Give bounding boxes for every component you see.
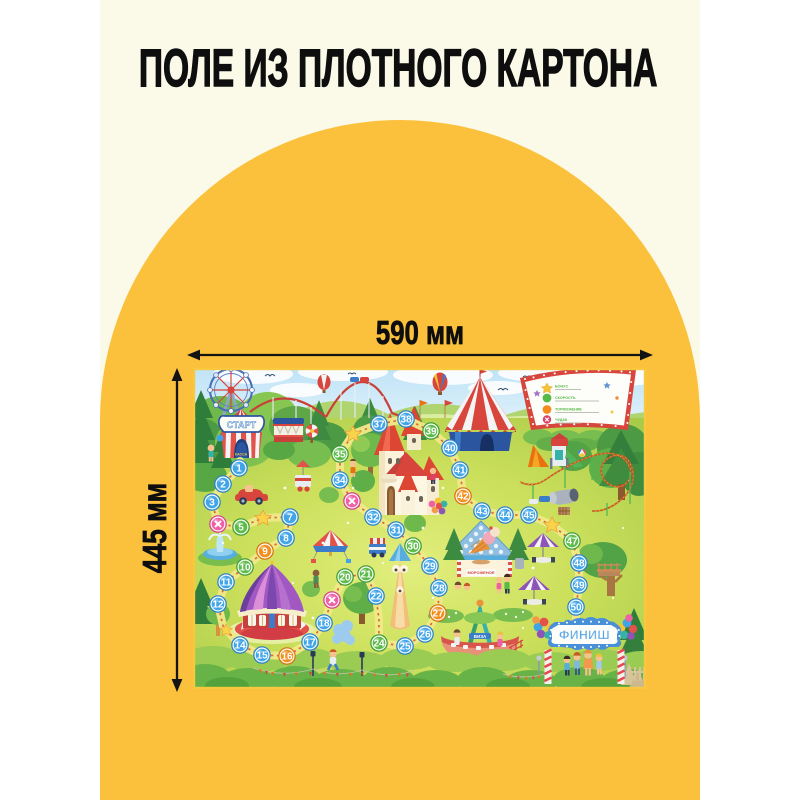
svg-text:7: 7 — [287, 513, 293, 524]
svg-text:32: 32 — [367, 513, 379, 524]
svg-text:10: 10 — [239, 563, 251, 574]
svg-text:47: 47 — [566, 537, 578, 548]
svg-text:15: 15 — [256, 651, 268, 662]
svg-text:БОНУС: БОНУС — [555, 385, 568, 389]
svg-text:СТАРТ: СТАРТ — [227, 420, 257, 430]
svg-text:44: 44 — [499, 511, 511, 522]
svg-text:38: 38 — [400, 415, 412, 426]
svg-text:9: 9 — [262, 547, 268, 558]
svg-text:СКОРОСТЬ: СКОРОСТЬ — [555, 396, 576, 400]
svg-text:42: 42 — [457, 492, 469, 503]
svg-text:8: 8 — [283, 534, 289, 545]
svg-text:ВИЗА: ВИЗА — [474, 634, 487, 639]
svg-text:25: 25 — [399, 642, 411, 653]
svg-text:31: 31 — [390, 526, 402, 537]
svg-text:МОРОЖЕНОЕ: МОРОЖЕНОЕ — [467, 570, 494, 575]
svg-text:3: 3 — [209, 498, 215, 509]
svg-text:45: 45 — [523, 511, 535, 522]
svg-text:22: 22 — [370, 592, 382, 603]
svg-text:18: 18 — [318, 619, 330, 630]
svg-text:ТОРМОЖЕНИЕ: ТОРМОЖЕНИЕ — [555, 408, 582, 412]
svg-text:КАССА: КАССА — [235, 453, 248, 457]
svg-text:ЧУДАК: ЧУДАК — [555, 418, 568, 422]
svg-text:34: 34 — [334, 476, 346, 487]
svg-text:43: 43 — [476, 507, 488, 518]
svg-text:11: 11 — [221, 578, 232, 589]
svg-text:30: 30 — [407, 542, 419, 553]
svg-text:1: 1 — [236, 464, 242, 475]
svg-text:27: 27 — [432, 609, 444, 620]
svg-text:29: 29 — [424, 562, 436, 573]
svg-text:14: 14 — [234, 641, 246, 652]
svg-text:35: 35 — [334, 450, 346, 461]
svg-text:12: 12 — [212, 600, 224, 611]
svg-text:49: 49 — [573, 581, 585, 592]
svg-text:41: 41 — [454, 466, 466, 477]
svg-text:48: 48 — [573, 559, 585, 570]
svg-text:28: 28 — [433, 584, 445, 595]
svg-text:ФИНИШ: ФИНИШ — [559, 628, 610, 642]
svg-text:17: 17 — [304, 638, 316, 649]
svg-text:40: 40 — [444, 444, 456, 455]
svg-text:37: 37 — [373, 420, 385, 431]
svg-text:39: 39 — [425, 427, 437, 438]
svg-text:26: 26 — [419, 630, 431, 641]
svg-text:2: 2 — [220, 480, 226, 491]
svg-text:50: 50 — [570, 603, 582, 614]
svg-text:16: 16 — [281, 652, 293, 663]
svg-text:21: 21 — [360, 570, 372, 581]
svg-text:5: 5 — [238, 523, 244, 534]
svg-text:24: 24 — [373, 639, 385, 650]
svg-text:20: 20 — [339, 573, 351, 584]
